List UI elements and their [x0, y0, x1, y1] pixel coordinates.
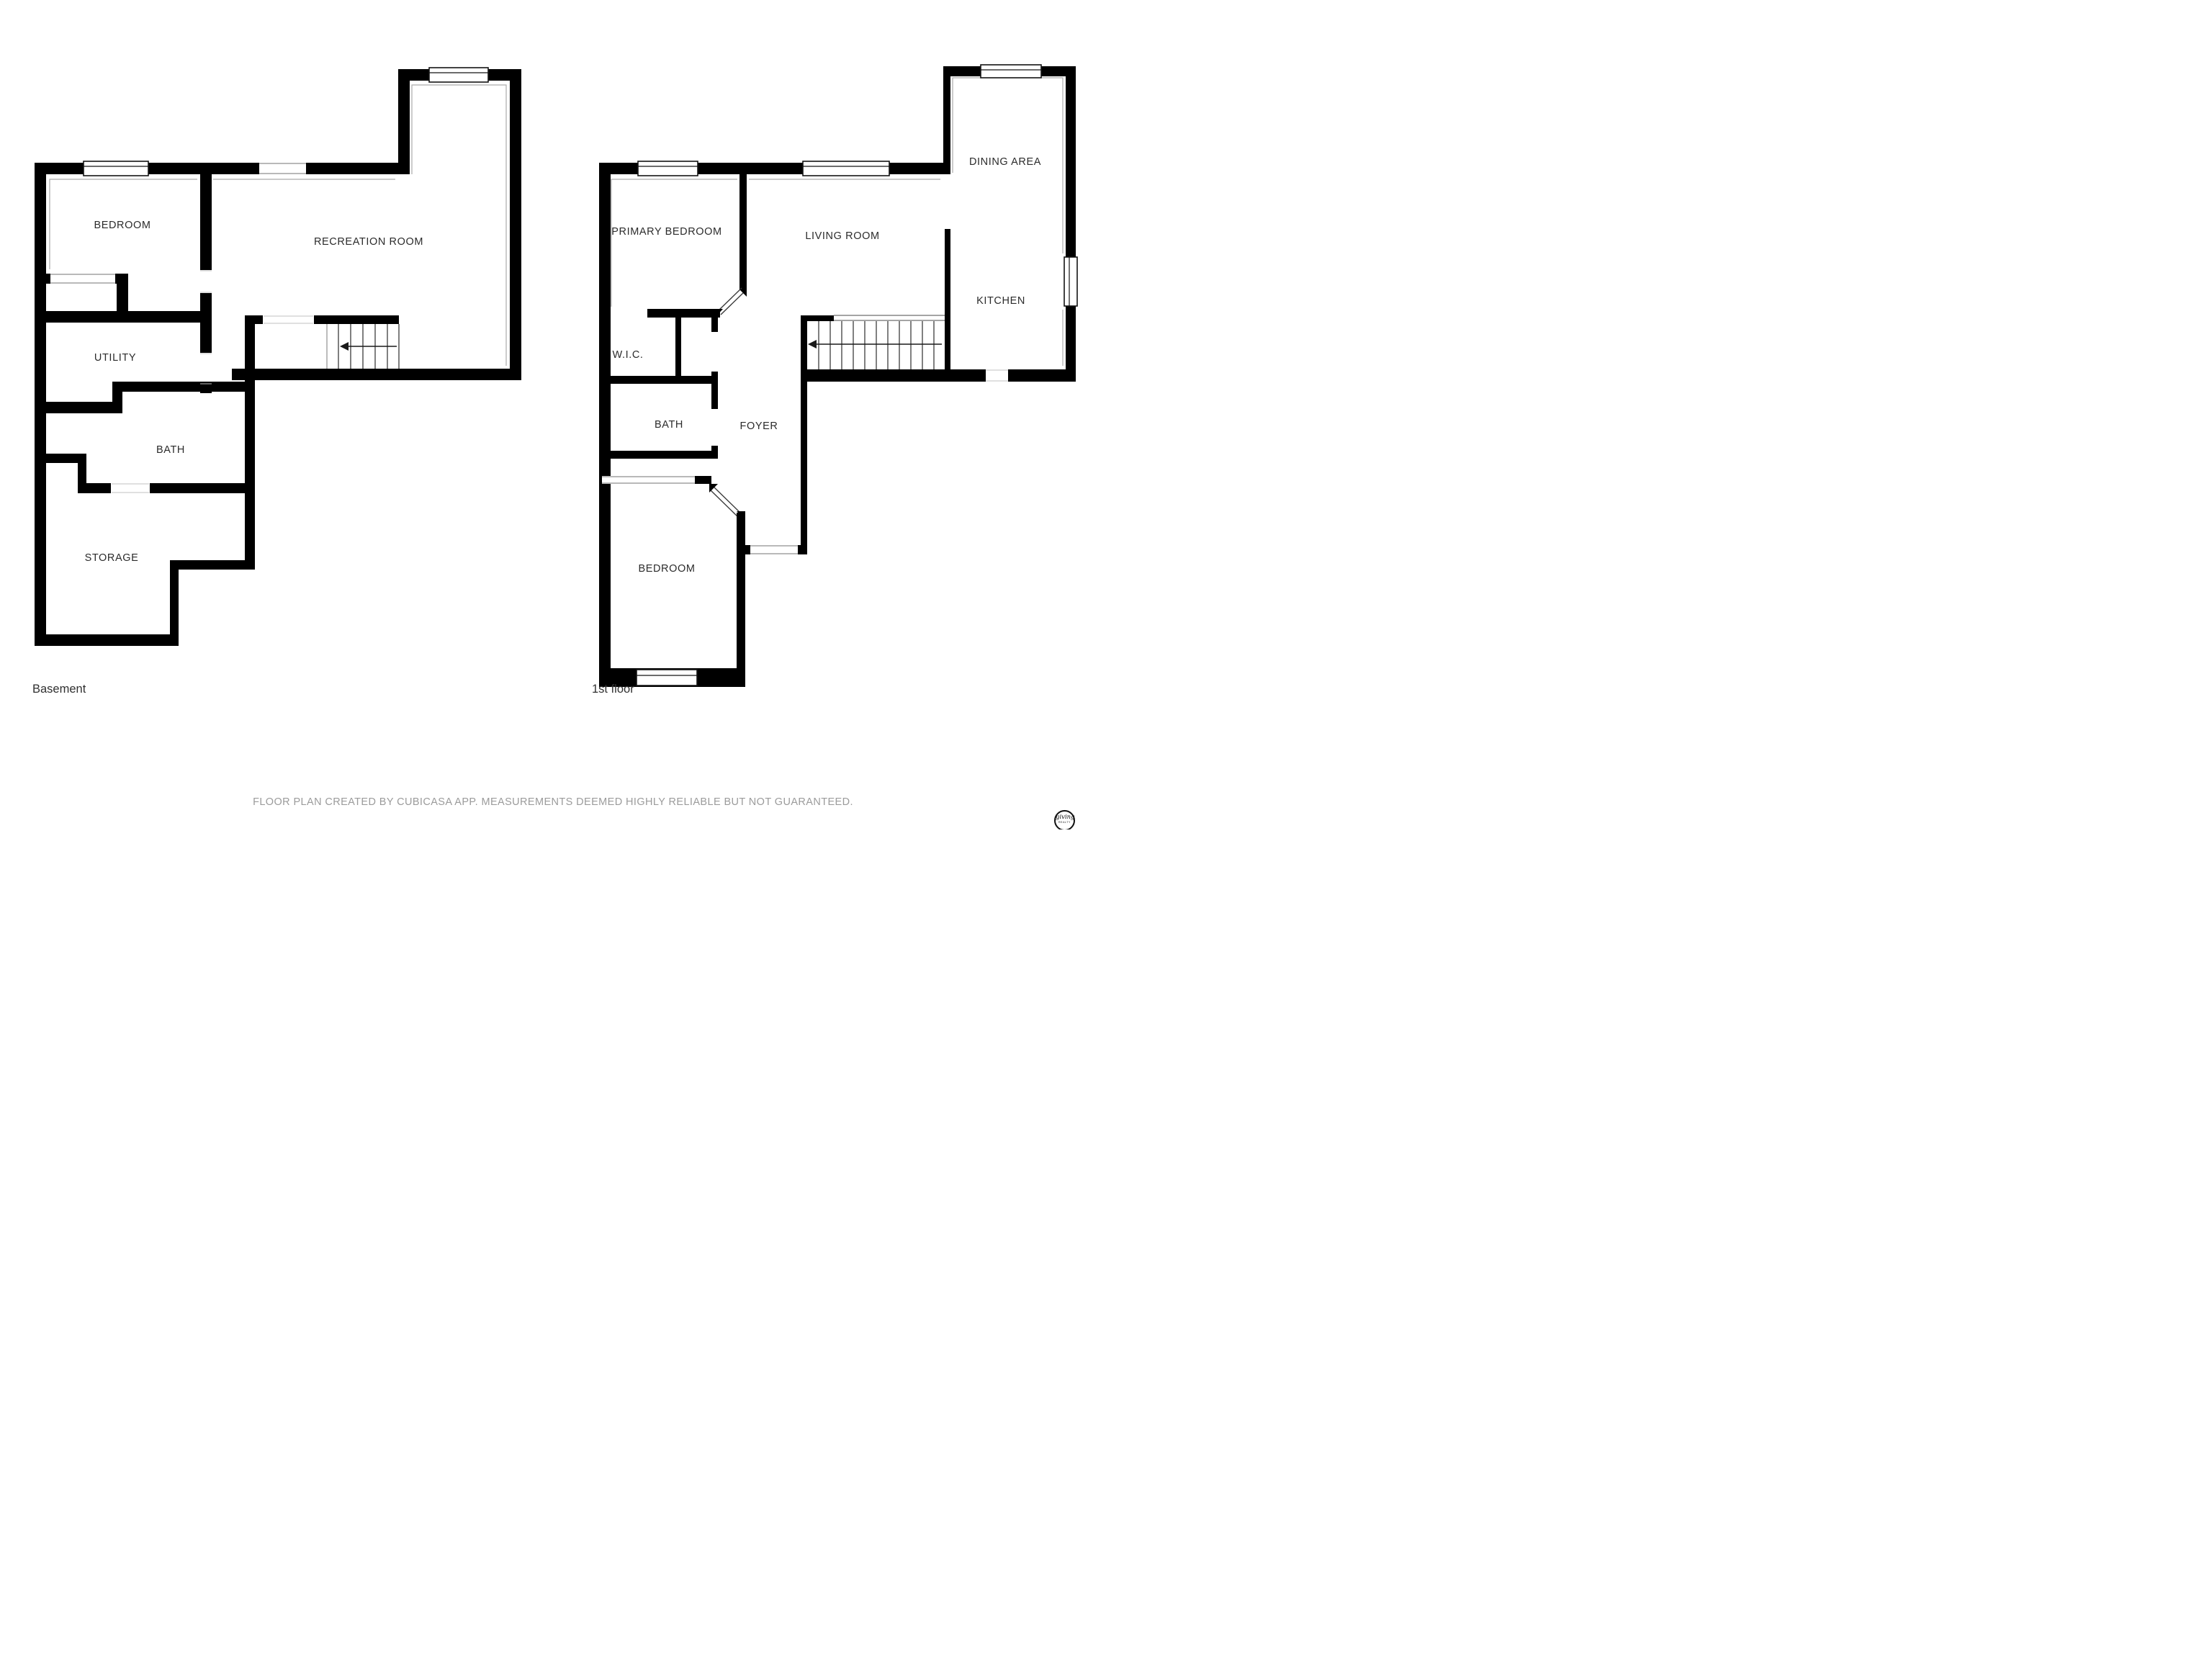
basement-bath-bottom-wall	[150, 483, 255, 493]
first-floor-bottom-wall	[807, 369, 986, 382]
floor-plan-page: BEDROOM RECREATION ROOM UTILITY BATH STO…	[0, 0, 1106, 829]
room-label-recreation-room: RECREATION ROOM	[314, 236, 423, 248]
basement-bump-left-wall	[398, 69, 410, 174]
floor-title-1st-floor: 1st floor	[592, 683, 634, 696]
kitchen-window	[1064, 257, 1077, 306]
foyer-bottom-wall	[741, 545, 750, 554]
first-floor-stairs	[819, 321, 934, 369]
room-label-bath-basement: BATH	[156, 444, 185, 456]
room-label-kitchen: KITCHEN	[976, 295, 1025, 307]
foyer-right-wall	[801, 315, 807, 554]
basement-bump-window	[429, 68, 488, 82]
basement-stair-wall	[314, 315, 399, 324]
logo-sub-text: REALTY	[1056, 821, 1074, 824]
basement-rec-bottom-wall	[232, 369, 521, 380]
basement-bath-bottom-wall	[86, 483, 111, 493]
giving-realty-logo: giving REALTY	[1054, 810, 1075, 829]
kitchen-door-opening	[986, 370, 1008, 381]
foyer-left-wall	[711, 309, 718, 332]
basement-bath-wall	[78, 454, 86, 493]
bath-bottom-wall	[599, 451, 718, 459]
room-label-primary-bedroom: PRIMARY BEDROOM	[611, 226, 722, 238]
room-label-living-room: LIVING ROOM	[805, 230, 879, 242]
basement-right-wall	[510, 69, 521, 380]
primary-bedroom-bottom-wall	[647, 309, 720, 318]
room-label-utility: UTILITY	[94, 352, 136, 364]
logo-script-text: giving	[1056, 814, 1074, 821]
basement-storage-step-wall	[170, 560, 255, 570]
basement-closet-opening	[50, 274, 115, 284]
bedroom-right-wall	[737, 513, 745, 687]
room-label-wic: W.I.C.	[612, 349, 643, 361]
primary-bedroom-bottom-wall	[599, 309, 608, 318]
stairs-top-opening	[834, 315, 945, 321]
wic-right-wall	[675, 318, 681, 384]
living-room-window	[803, 161, 889, 176]
first-floor-outer-left-wall	[599, 163, 611, 687]
foyer-bottom-wall	[798, 545, 807, 554]
room-label-dining-area: DINING AREA	[969, 156, 1041, 168]
room-label-bedroom-first-floor: BEDROOM	[638, 563, 695, 575]
room-label-foyer: FOYER	[740, 421, 778, 432]
floor-title-basement: Basement	[32, 683, 86, 696]
footer-disclaimer: FLOOR PLAN CREATED BY CUBICASA APP. MEAS…	[0, 796, 1106, 808]
first-floor-right-wall	[1066, 66, 1076, 382]
dining-bump-left-wall	[943, 66, 950, 174]
basement-bedroom-window	[84, 161, 148, 176]
room-label-bedroom-basement: BEDROOM	[94, 220, 150, 231]
basement-rec-top-opening	[259, 163, 306, 174]
basement-utility-bottom-wall	[35, 402, 122, 413]
basement-utility-bottom-wall	[122, 382, 255, 392]
wic-bath-divider-wall	[599, 376, 718, 384]
first-floor-stairs-direction-arrow	[808, 340, 942, 349]
room-label-bath-first-floor: BATH	[655, 419, 683, 431]
first-floor-bottom-wall	[1008, 369, 1076, 382]
kitchen-living-divider-wall	[945, 229, 950, 382]
basement-bath-right-wall	[245, 315, 255, 570]
dining-area-window	[981, 65, 1041, 78]
room-label-storage: STORAGE	[85, 552, 139, 564]
bath-right-wall	[711, 384, 718, 409]
basement-stairs-direction-arrow	[340, 342, 397, 351]
floor-plan-drawing	[0, 0, 1106, 829]
basement-storage-bottom-wall	[35, 634, 179, 646]
basement-utility-top-wall	[35, 311, 212, 323]
basement-closet-wall	[117, 274, 128, 311]
basement-divider-wall	[200, 293, 212, 353]
primary-bedroom-window	[638, 161, 698, 176]
stairs-top-wall	[807, 315, 834, 321]
basement-stair-wall	[245, 315, 263, 324]
basement-utility-step-wall	[112, 382, 122, 413]
basement-divider-wall	[200, 174, 212, 270]
foyer-exterior-opening	[750, 545, 798, 554]
bedroom-top-opening	[602, 476, 695, 484]
bedroom-window	[637, 670, 697, 685]
primary-bedroom-right-wall	[739, 174, 747, 289]
